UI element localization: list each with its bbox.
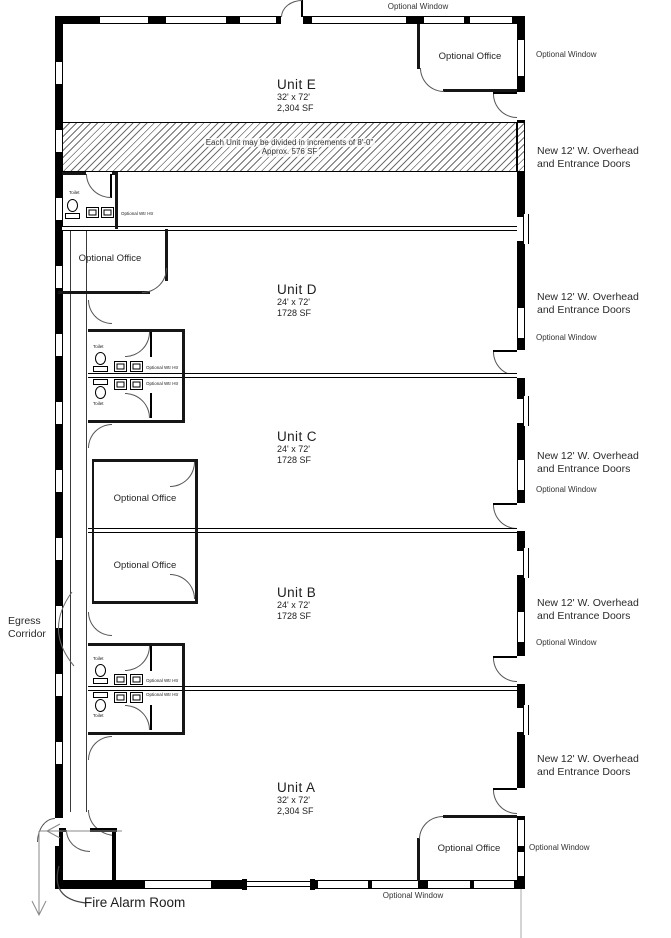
office-wall [93, 601, 197, 604]
office-wall [92, 459, 94, 604]
window [517, 612, 525, 642]
office-wall [443, 89, 517, 92]
overhead-doors-label: New 12' W. Overhead and Entrance Doors [537, 753, 662, 778]
unit-area: 1728 SF [277, 611, 316, 622]
optional-office-label: Optional Office [423, 843, 515, 854]
window [517, 308, 525, 338]
window [55, 334, 63, 356]
optional-window-label: Optional Window [536, 333, 596, 342]
toilet-label: Toilet [93, 656, 104, 661]
door-leaf [150, 646, 152, 671]
unit-size: 32' x 72' [277, 795, 315, 806]
unit-divider-wall [88, 528, 517, 533]
unit-area: 1728 SF [277, 308, 317, 319]
door-opening [517, 788, 525, 816]
egress-corridor-label: Egress Corridor [8, 615, 68, 640]
toilet-room-wall [115, 172, 118, 229]
window [100, 16, 148, 24]
corridor-wall [86, 231, 87, 812]
toilet-label: Toilet [93, 713, 104, 718]
fire-alarm-room-wall [59, 828, 63, 884]
door-swing-icon [170, 574, 195, 599]
door-swing-icon [125, 646, 150, 671]
office-wall [417, 838, 420, 881]
overhead-doors-label: New 12' W. Overhead and Entrance Doors [537, 145, 662, 170]
door-swing-icon [37, 818, 55, 842]
window [517, 820, 525, 846]
sink-icon [130, 361, 143, 372]
door-jamb [310, 879, 315, 890]
door-swing-icon [493, 790, 517, 814]
door-swing-icon [420, 68, 444, 92]
door-swing-icon [125, 332, 150, 357]
toilet-icon [93, 678, 108, 684]
overhead-door-panel [523, 548, 529, 578]
door-swing-icon [493, 505, 517, 529]
unit-name: Unit B [277, 585, 316, 600]
window [517, 40, 525, 76]
overhead-doors-label: New 12' W. Overhead and Entrance Doors [537, 450, 662, 475]
sink-icon [114, 361, 127, 372]
optional-window-label: Optional Window [536, 485, 596, 494]
unit-area: 1728 SF [277, 455, 317, 466]
floor-plan: Each Unit may be divided in increments o… [0, 0, 671, 938]
window [474, 880, 514, 889]
optional-window-label: Optional Window [380, 2, 456, 11]
door-swing-icon [88, 612, 112, 636]
sink-icon [130, 674, 143, 685]
unit-e-label: Unit E 32' x 72' 2,304 SF [277, 77, 316, 113]
toilet-room-wall [88, 420, 185, 423]
door-swing-icon [281, 0, 302, 17]
unit-b-label: Unit B 24' x 72' 1728 SF [277, 585, 316, 621]
sink-icon [114, 692, 127, 703]
window [372, 880, 418, 889]
window [145, 880, 211, 889]
unit-name: Unit C [277, 429, 317, 444]
door-swing-icon [493, 658, 517, 682]
sink-icon [86, 207, 99, 218]
toilet-label: Toilet [93, 401, 104, 406]
door-swing-icon [493, 94, 517, 118]
unit-divider-wall [88, 373, 517, 378]
door-swing-icon [170, 462, 195, 487]
water-heater-label: Optional Wtr Htr [146, 381, 178, 386]
door-jamb [242, 879, 247, 890]
toilet-label: Toilet [93, 344, 104, 349]
toilet-icon [95, 386, 106, 399]
door-leaf [150, 393, 152, 418]
toilet-room-wall [88, 732, 185, 735]
window [55, 62, 63, 84]
toilet-icon [93, 379, 108, 385]
window [240, 16, 276, 24]
door-swing-icon [125, 393, 150, 418]
overhead-door-panel [523, 705, 529, 735]
office-wall [58, 291, 150, 294]
sink-icon [101, 207, 114, 218]
door-swing-icon [125, 705, 150, 730]
door-opening [517, 503, 525, 531]
unit-divider-wall [88, 686, 517, 691]
overhead-doors-label: New 12' W. Overhead and Entrance Doors [537, 597, 662, 622]
toilet-room-wall [182, 643, 185, 735]
toilet-icon [67, 199, 78, 212]
window [55, 402, 63, 424]
office-wall [443, 815, 517, 818]
hatch-band: Each Unit may be divided in increments o… [62, 122, 517, 172]
window [55, 266, 63, 288]
fire-alarm-room-label: Fire Alarm Room [84, 895, 214, 910]
sink-icon [114, 379, 127, 390]
window [424, 16, 464, 24]
office-wall [417, 24, 420, 69]
unit-area: 2,304 SF [277, 103, 316, 114]
door-swing-icon [88, 424, 112, 448]
window [55, 674, 63, 696]
unit-name: Unit D [277, 282, 317, 297]
divisible-note-line1: Each Unit may be divided in increments o… [204, 138, 376, 148]
unit-size: 24' x 72' [277, 297, 317, 308]
sink-icon [114, 674, 127, 685]
unit-size: 24' x 72' [277, 600, 316, 611]
toilet-icon [95, 352, 106, 365]
door-opening [517, 656, 525, 684]
window [55, 470, 63, 492]
toilet-label: Toilet [69, 190, 80, 195]
door-leaf [150, 332, 152, 357]
window [428, 880, 470, 889]
hatch-wall-stub [517, 122, 525, 172]
optional-window-label: Optional Window [536, 50, 596, 59]
door-swing-icon [142, 268, 167, 293]
sink-icon [130, 379, 143, 390]
optional-window-label: Optional Window [536, 638, 596, 647]
optional-office-label: Optional Office [95, 560, 195, 571]
window [55, 538, 63, 560]
toilet-room-wall [182, 329, 185, 423]
divisible-note-line2: Approx. 576 SF [260, 147, 320, 157]
optional-window-label: Optional Window [529, 843, 589, 852]
window [318, 880, 368, 889]
door-swing-icon [66, 830, 90, 852]
door-opening [517, 92, 525, 120]
overhead-doors-label: New 12' W. Overhead and Entrance Doors [537, 291, 662, 316]
entry-frame-line [245, 886, 312, 887]
water-heater-label: Optional Wtr Htr [146, 365, 178, 370]
optional-office-label: Optional Office [424, 51, 516, 62]
overhead-door-panel [523, 214, 529, 244]
sink-icon [130, 692, 143, 703]
overhead-door-panel [523, 396, 529, 426]
unit-name: Unit A [277, 780, 315, 795]
window [517, 460, 525, 490]
window [55, 198, 63, 220]
window [517, 852, 525, 876]
toilet-icon [93, 366, 108, 372]
entry-frame-line [245, 881, 312, 882]
unit-size: 32' x 72' [277, 92, 316, 103]
toilet-icon [65, 213, 80, 219]
door-swing-icon [88, 736, 112, 760]
optional-office-label: Optional Office [60, 253, 160, 264]
corridor-wall [70, 231, 71, 812]
unit-a-label: Unit A 32' x 72' 2,304 SF [277, 780, 315, 816]
door-swing-icon [86, 174, 111, 198]
unit-c-label: Unit C 24' x 72' 1728 SF [277, 429, 317, 465]
unit-name: Unit E [277, 77, 316, 92]
unit-size: 24' x 72' [277, 444, 317, 455]
toilet-icon [95, 699, 106, 712]
unit-area: 2,304 SF [277, 806, 315, 817]
toilet-icon [95, 664, 106, 677]
door-swing-icon [419, 816, 443, 839]
door-leaf [150, 705, 152, 730]
door-swing-icon [88, 300, 112, 324]
door-opening [517, 350, 525, 378]
water-heater-label: Optional Wtr Htr [121, 211, 153, 216]
optional-office-label: Optional Office [95, 493, 195, 504]
window [166, 16, 226, 24]
optional-window-label: Optional Window [375, 891, 451, 900]
water-heater-label: Optional Wtr Htr [146, 678, 178, 683]
unit-divider-wall [62, 226, 517, 231]
door-opening [281, 16, 303, 24]
window [312, 16, 406, 24]
window [55, 742, 63, 764]
egress-arrow-head [32, 901, 46, 915]
water-heater-label: Optional Wtr Htr [146, 692, 178, 697]
unit-d-label: Unit D 24' x 72' 1728 SF [277, 282, 317, 318]
toilet-icon [93, 692, 108, 698]
window [470, 16, 512, 24]
fire-alarm-room-wall [112, 828, 116, 884]
office-wall [195, 459, 198, 604]
